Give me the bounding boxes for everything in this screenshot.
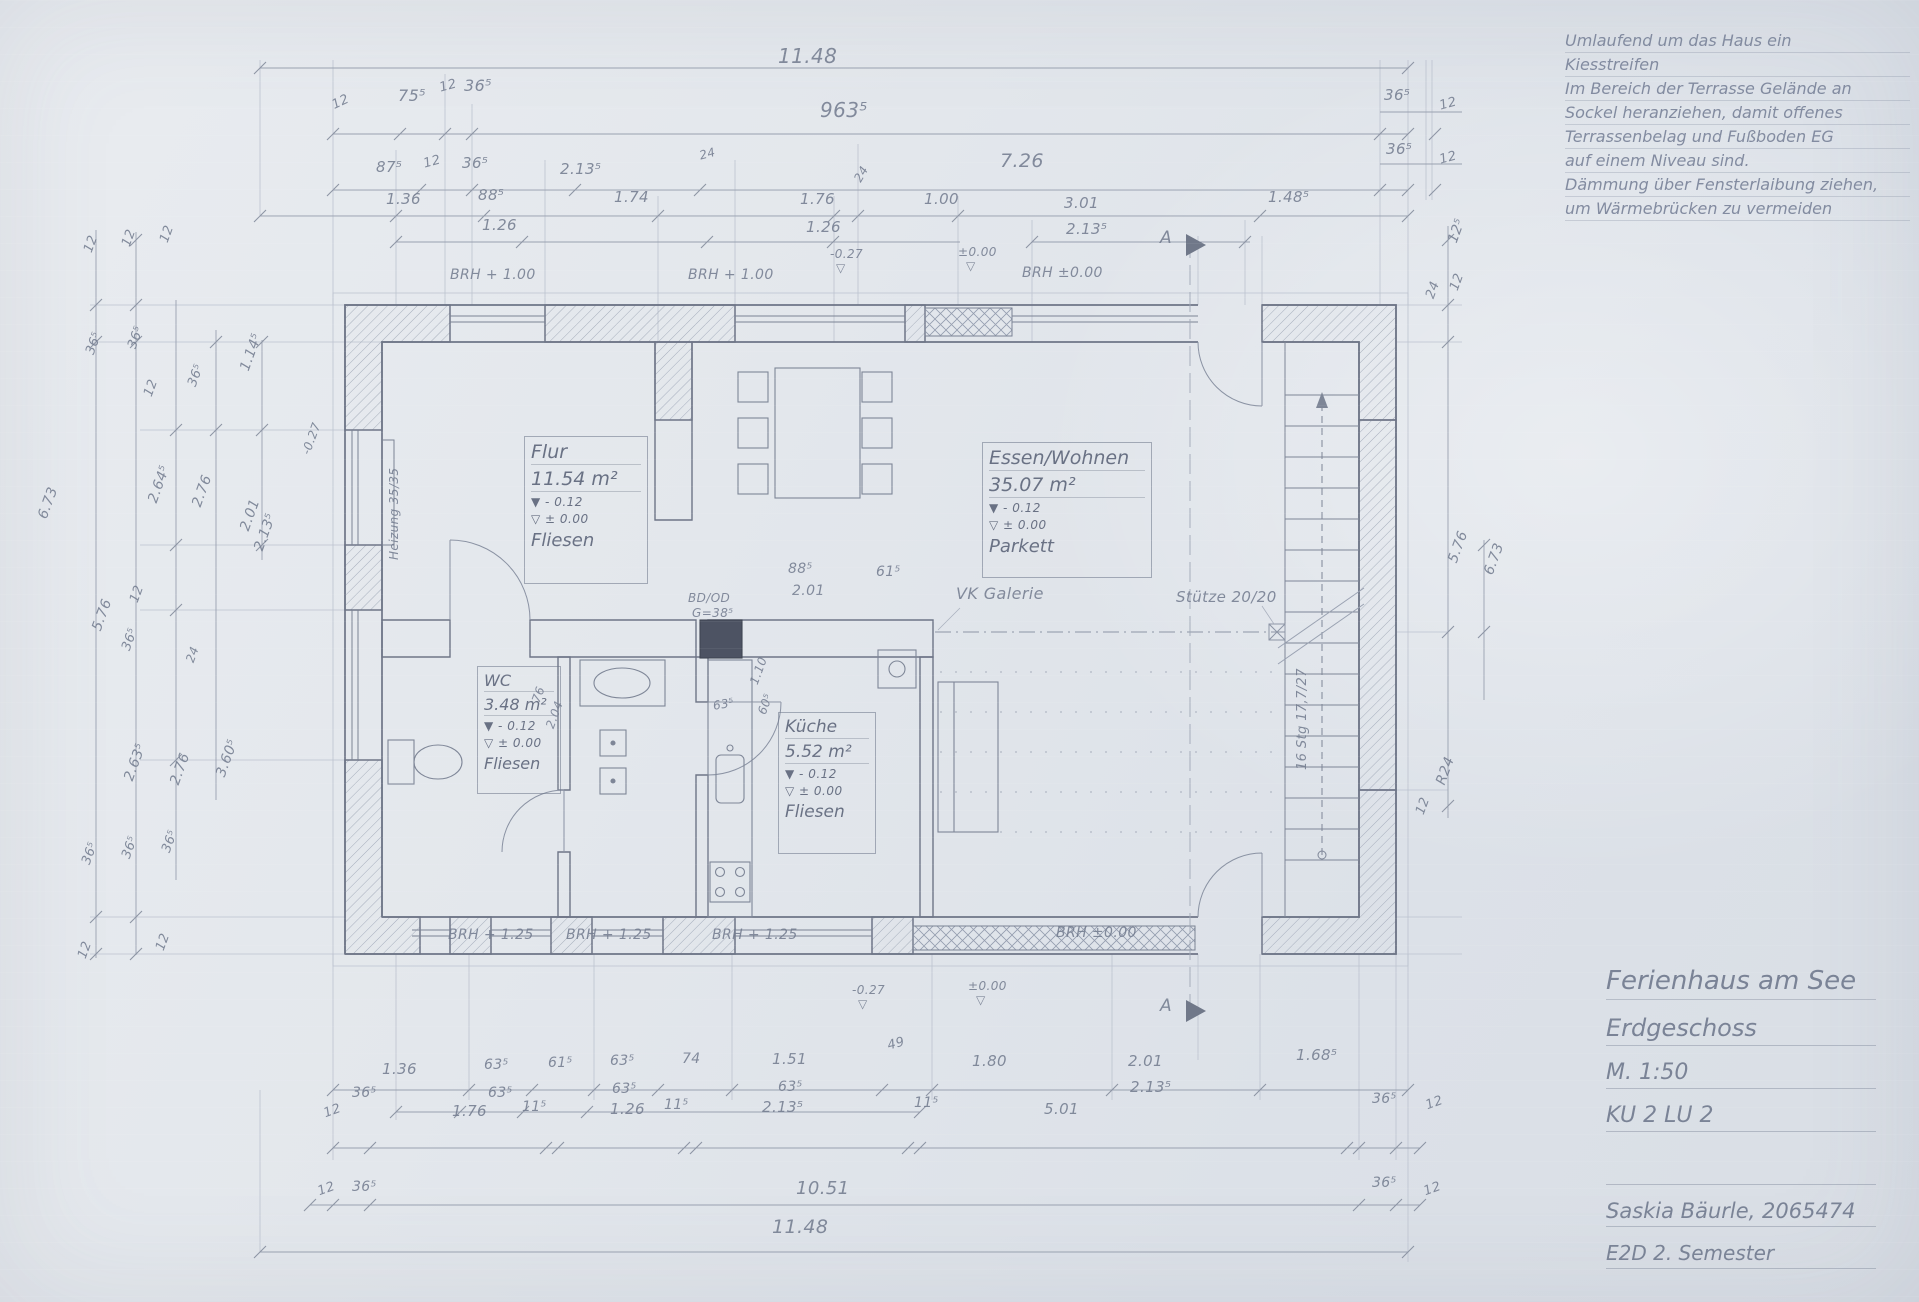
dim-label: ±0.00 [968,980,1007,992]
room-level-fin: ▽ ± 0.00 [531,512,641,526]
note-line: Im Bereich der Terrasse Gelände an [1565,78,1910,101]
extension-lines [90,60,1462,1262]
dim-label: 3.01 [1064,196,1099,211]
note-line: Kiesstreifen [1565,54,1910,77]
note-line: Umlaufend um das Haus ein [1565,30,1910,53]
note-line: Sockel heranziehen, damit offenes [1565,102,1910,125]
dim-label: 11⁵ [914,1096,939,1110]
dim-label: BRH + 1.25 [448,928,534,942]
scale-label: M. 1:50 [1606,1060,1876,1089]
dim-label: ±0.00 [958,246,997,258]
dim-label: 1.26 [610,1102,645,1117]
room-level-raw: ▼ - 0.12 [989,501,1145,515]
dim-label: Heizung 35/35 [388,468,400,560]
dim-label: 61⁵ [876,565,901,579]
dim-label: 1.76 [800,192,835,207]
dim-label: 10.51 [796,1180,850,1198]
dim-label: 63⁵ [778,1080,803,1094]
dim-label: 16 Stg 17,7/27 [1296,668,1309,770]
dim-label: ▽ [858,998,868,1010]
room-label-kueche: Küche 5.52 m² ▼ - 0.12 ▽ ± 0.00 Fliesen [778,712,876,854]
course-code: KU 2 LU 2 [1606,1103,1876,1132]
dim-label: 36⁵ [464,78,492,94]
room-name: Küche [785,717,869,739]
dim-label: 63⁵ [612,1082,637,1096]
dim-label: 1.68⁵ [1296,1048,1337,1063]
project-title: Ferienhaus am See [1606,966,1876,1000]
gallery-lines [935,606,1285,832]
room-level-raw: ▼ - 0.12 [785,767,869,781]
dimension-lines [96,68,1484,1252]
dim-label: BRH ±0.00 [1022,266,1103,280]
dim-label: 1.48⁵ [1268,190,1309,205]
dim-label: ▽ [836,262,846,274]
note-line: Dämmung über Fensterlaibung ziehen, [1565,174,1910,197]
dim-label: G=38⁵ [692,607,733,619]
room-level-fin: ▽ ± 0.00 [484,736,554,750]
dim-label: 11⁵ [664,1098,689,1112]
room-area: 11.54 m² [531,468,641,492]
dim-label: 11.48 [778,46,837,66]
drawing-sheet: 11.481275⁵1236⁵963⁵36⁵1287⁵1236⁵2.13⁵247… [0,0,1919,1302]
room-level-fin: ▽ ± 0.00 [785,784,869,798]
staircase [1278,342,1364,917]
room-name: Flur [531,441,641,465]
handwritten-notes: Umlaufend um das Haus ein Kiesstreifen I… [1565,30,1910,222]
dim-label: 7.26 [1000,152,1044,171]
room-area: 35.07 m² [989,474,1145,498]
dim-label: 2.01 [1128,1054,1163,1069]
note-line: um Wärmebrücken zu vermeiden [1565,198,1910,221]
room-label-wc: WC 3.48 m² ▼ - 0.12 ▽ ± 0.00 Fliesen [477,666,561,794]
semester-label: E2D 2. Semester [1606,1241,1876,1269]
dim-label: 1.36 [382,1062,417,1077]
note-line: Terrassenbelag und Fußboden EG [1565,126,1910,149]
section-line [1186,234,1206,1022]
dim-label: 88⁵ [478,188,504,203]
dim-label: -0.27 [852,984,885,996]
room-finish: Fliesen [484,754,554,773]
dim-label: 1.74 [614,190,649,205]
dim-label: 2.13⁵ [762,1100,803,1115]
dim-label: 87⁵ [376,160,402,175]
room-level-raw: ▼ - 0.12 [531,495,641,509]
shaft-block [700,620,742,658]
dim-label: 63⁵ [488,1086,513,1100]
dim-label: ▽ [976,994,986,1006]
dim-label: Stütze 20/20 [1176,590,1277,605]
dim-label: 1.00 [924,192,959,207]
dim-label: 36⁵ [462,156,488,171]
dim-label: BRH + 1.25 [712,928,798,942]
dim-label: 36⁵ [352,1180,377,1194]
dim-label: 36⁵ [1372,1092,1397,1106]
dim-label: BRH + 1.25 [566,928,652,942]
dim-label: BRH + 1.00 [450,268,536,282]
dim-label: 1.80 [972,1054,1007,1069]
dim-label: 963⁵ [820,100,868,120]
window-sill-bands [913,308,1195,950]
dim-label: 36⁵ [1386,142,1412,157]
dim-label: 11⁵ [522,1100,547,1114]
dim-label: 63⁵ [610,1054,635,1068]
dim-label: 1.51 [772,1052,807,1067]
room-level-raw: ▼ - 0.12 [484,719,554,733]
dim-label: A [1160,998,1172,1015]
dim-label: 1.36 [386,192,421,207]
room-name: WC [484,671,554,692]
dim-label: 75⁵ [398,88,426,104]
dim-label: 36⁵ [1384,88,1410,103]
dim-label: -0.27 [830,248,863,260]
room-label-essen-wohnen: Essen/Wohnen 35.07 m² ▼ - 0.12 ▽ ± 0.00 … [982,442,1152,578]
dim-label: 61⁵ [548,1056,573,1070]
dim-label: 36⁵ [352,1086,377,1100]
room-area: 3.48 m² [484,695,554,716]
room-finish: Fliesen [531,530,641,551]
dim-label: BD/OD [688,592,730,604]
room-label-flur: Flur 11.54 m² ▼ - 0.12 ▽ ± 0.00 Fliesen [524,436,648,584]
dim-label: 36⁵ [1372,1176,1397,1190]
dim-label: 2.13⁵ [1066,222,1107,237]
dim-label: 74 [682,1052,701,1066]
author-name: Saskia Bäurle, 2065474 [1606,1199,1876,1227]
dim-label: 88⁵ [788,562,813,576]
dim-label: 1.26 [806,220,841,235]
dim-label: 1.26 [482,218,517,233]
section-arrow-bottom [1186,1000,1206,1022]
section-arrow-top [1186,234,1206,256]
dim-label: 2.13⁵ [1130,1080,1171,1095]
dim-label: 11.48 [772,1218,828,1237]
title-rule [1606,1158,1876,1185]
dim-label: BRH + 1.00 [688,268,774,282]
room-finish: Parkett [989,536,1145,557]
dim-label: VK Galerie [956,586,1044,602]
dim-label: 5.01 [1044,1102,1079,1117]
furniture [388,368,998,917]
title-block: Ferienhaus am See Erdgeschoss M. 1:50 KU… [1606,966,1876,1283]
dim-label: BRH ±0.00 [1056,926,1137,940]
note-line: auf einem Niveau sind. [1565,150,1910,173]
dim-label: 2.13⁵ [560,162,601,177]
dim-label: 63⁵ [484,1058,509,1072]
dim-label: A [1160,230,1172,247]
floor-name: Erdgeschoss [1606,1014,1876,1046]
dim-label: ▽ [966,260,976,272]
dim-label: 1.76 [452,1104,487,1119]
dim-label: 2.01 [792,584,825,598]
room-finish: Fliesen [785,802,869,822]
dim-label: 63⁵ [712,696,735,712]
room-level-fin: ▽ ± 0.00 [989,518,1145,532]
room-area: 5.52 m² [785,742,869,764]
room-name: Essen/Wohnen [989,447,1145,471]
